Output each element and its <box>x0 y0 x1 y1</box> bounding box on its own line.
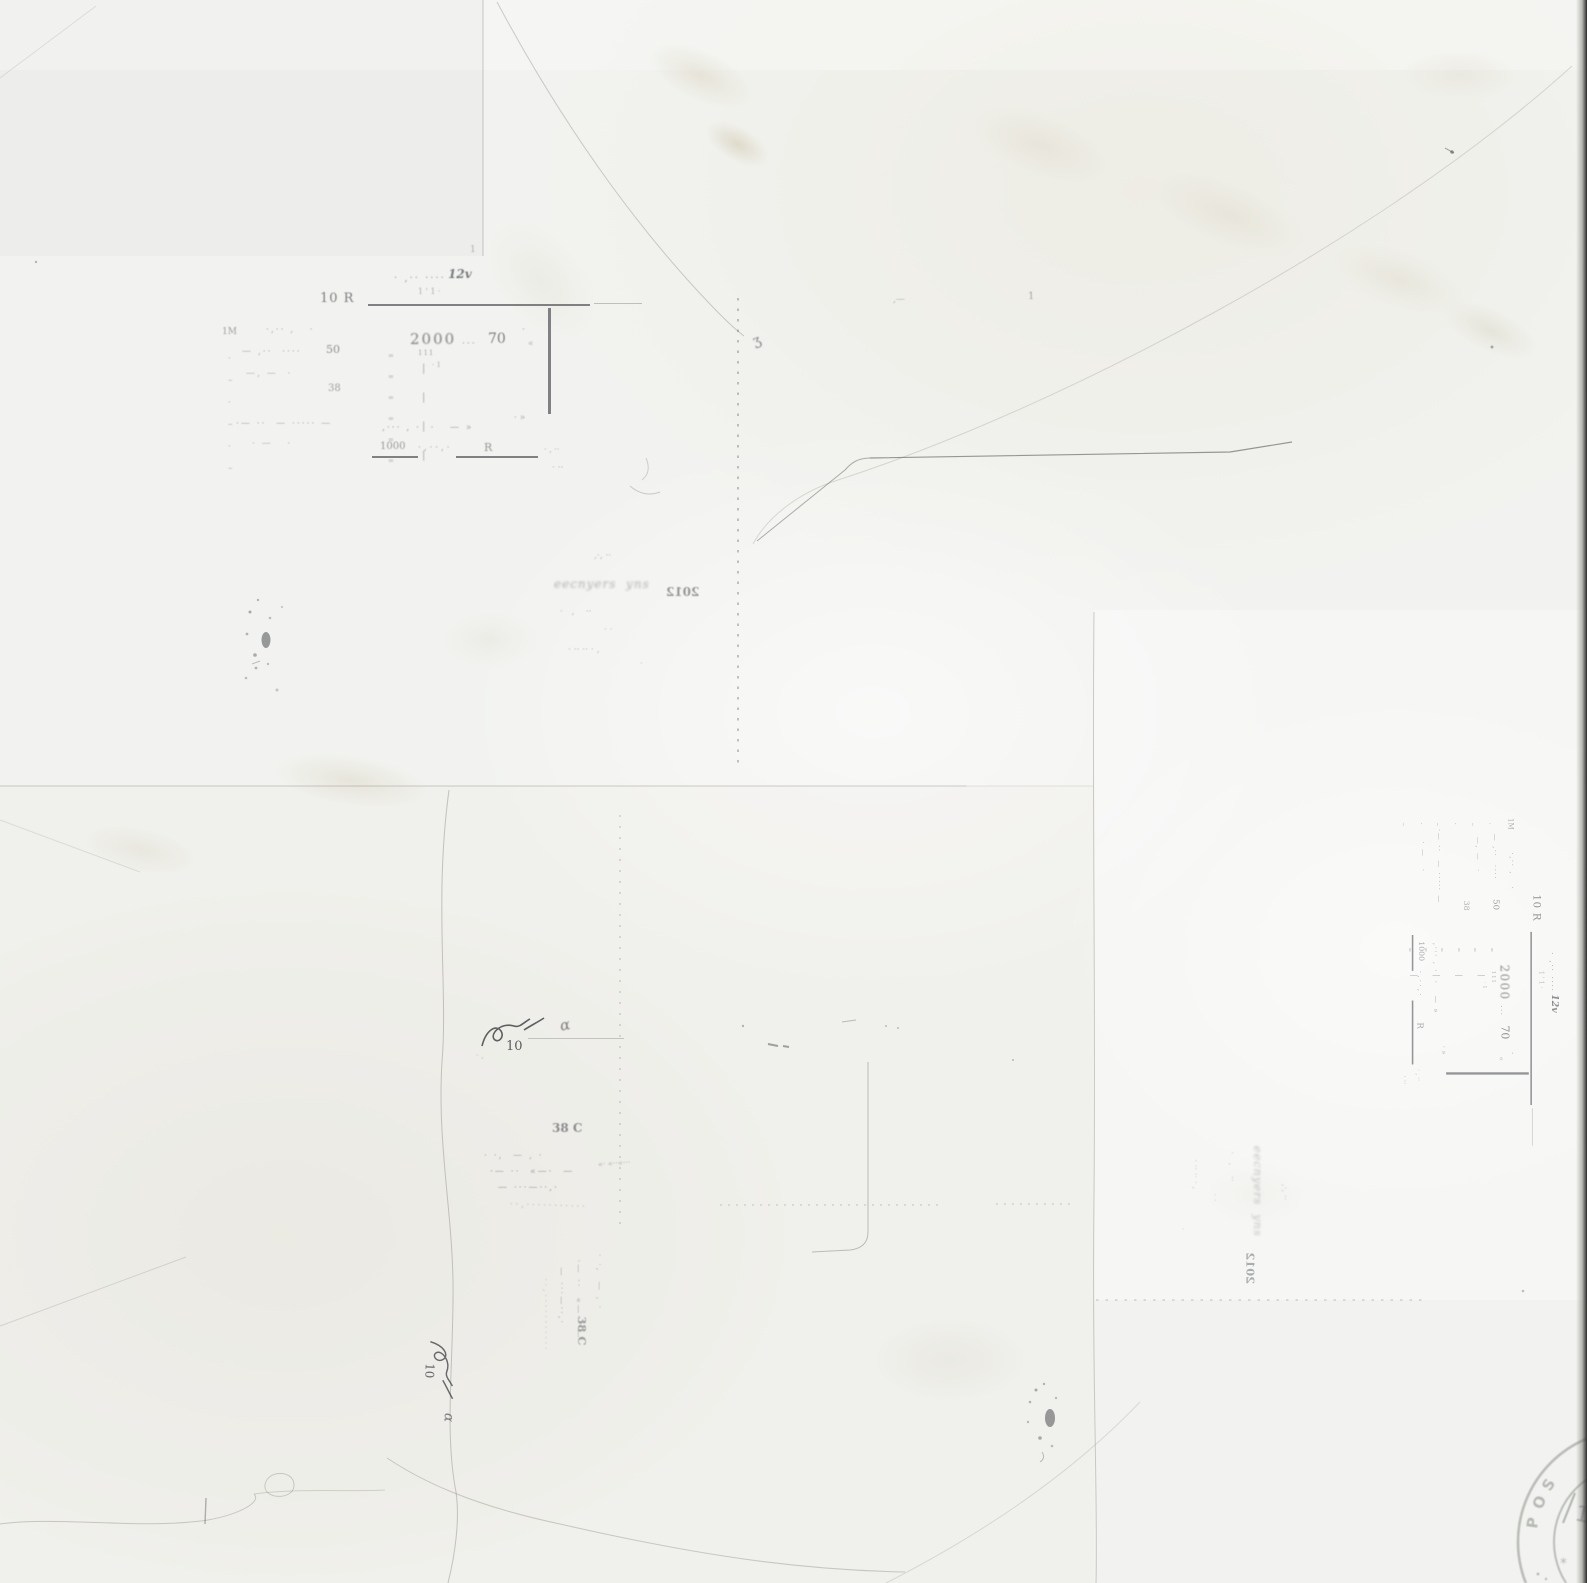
scan-edge <box>1576 0 1587 1583</box>
postmark-letter: S <box>1538 1475 1559 1494</box>
postmark-letter: P <box>1523 1516 1542 1529</box>
scanned-envelope-back: · ‚·· ···· ·· 12v 1 ' 1 · 10 R 1M · – · … <box>0 0 1587 1583</box>
postmark-star: * <box>1560 1556 1567 1572</box>
postmark-letter: O <box>1529 1493 1550 1511</box>
ink-specks-layer <box>0 0 1587 1583</box>
postmark-stamp: S O P * 1 <box>1468 1428 1587 1583</box>
